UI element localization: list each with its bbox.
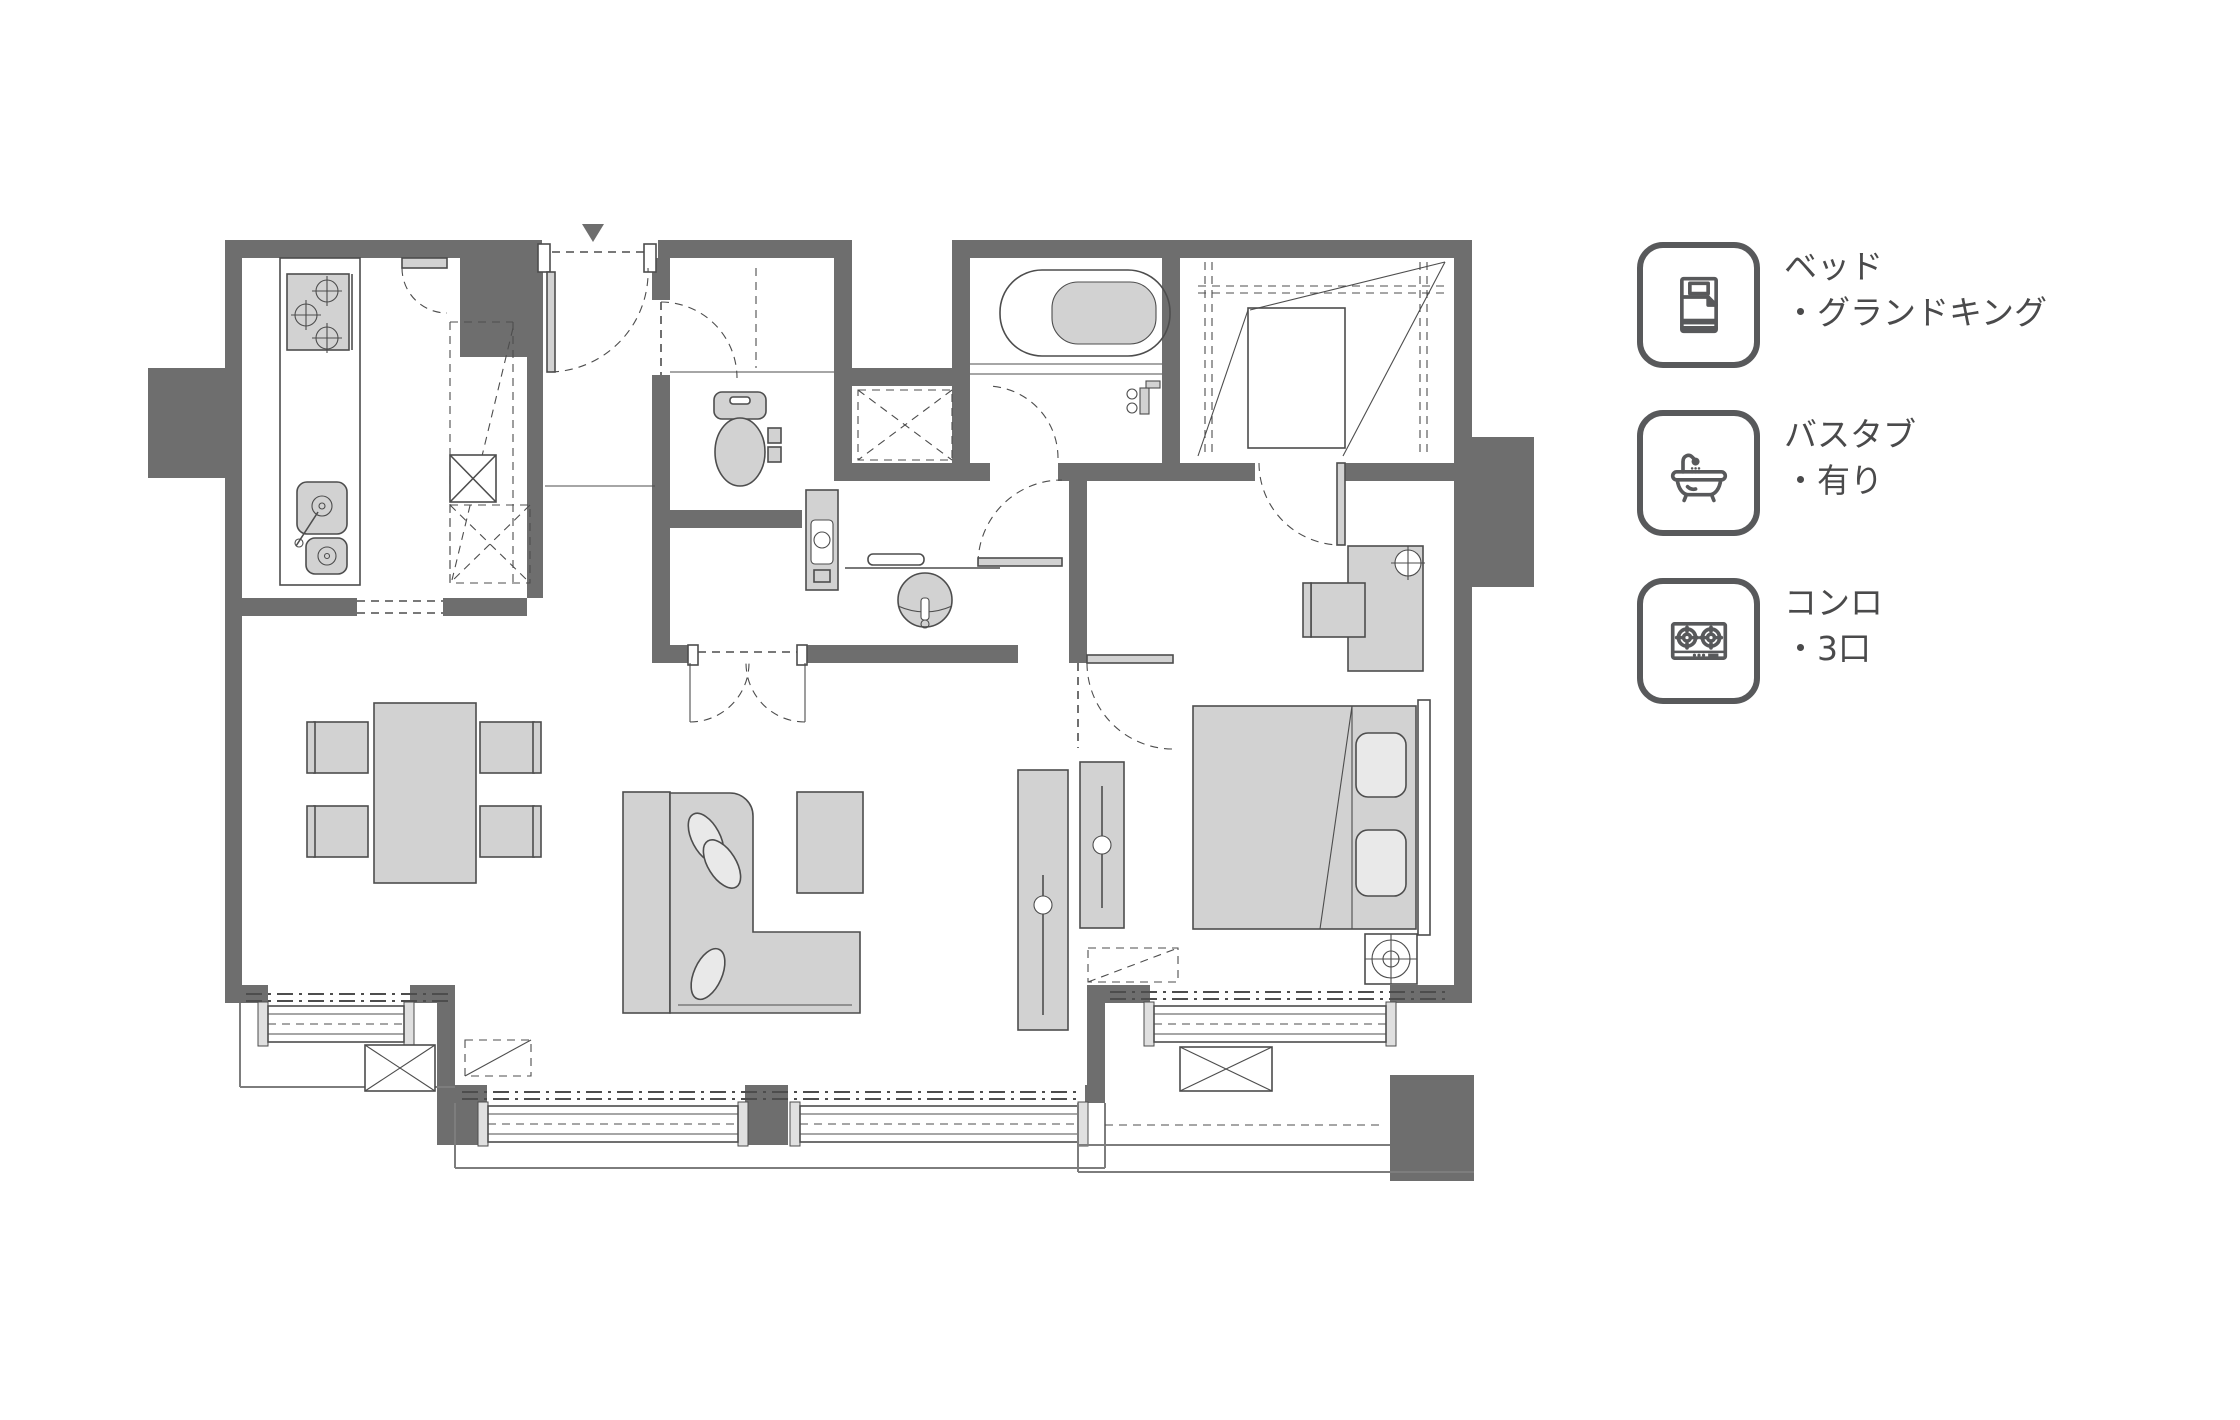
dining-chair [307, 806, 368, 857]
floor-plan [0, 0, 2240, 1420]
closet-mirror-panel [1248, 308, 1345, 448]
bedroom-door-leaf [1087, 655, 1173, 663]
hall-door-leaf [978, 558, 1062, 566]
window-dining [258, 1002, 414, 1046]
towel-bar [868, 554, 924, 565]
legend-bed-detail: ・グランドキング [1784, 290, 2047, 336]
pillow [1356, 733, 1406, 797]
coffee-table [797, 792, 863, 893]
toilet-control [768, 428, 781, 443]
toilet-room [661, 268, 834, 486]
toilet-door-swing [661, 302, 737, 378]
headboard [1418, 700, 1430, 935]
entrance [538, 224, 656, 486]
washbasin [898, 573, 952, 628]
door-frame-post [538, 244, 550, 272]
pillar-left [148, 368, 242, 478]
bathtub [1000, 270, 1170, 356]
stove-icon [1637, 578, 1760, 704]
entry-door-swing [551, 268, 648, 372]
hall-closet [858, 390, 952, 460]
legend-bathtub-detail: ・有り [1784, 458, 1916, 504]
toilet [714, 392, 766, 486]
ac-outdoor-unit [365, 1045, 435, 1091]
legend-stove-detail: ・3口 [1784, 626, 1883, 672]
dining-set [307, 703, 541, 883]
ac-outdoor-unit-2 [1180, 1047, 1272, 1091]
bed-icon [1637, 242, 1760, 368]
desk-chair [1303, 583, 1365, 637]
king-bed [1193, 700, 1430, 935]
stove-3-burner [287, 274, 352, 353]
legend-item-stove: コンロ ・3口 [1637, 578, 1883, 704]
double-door-ldk [688, 645, 807, 722]
washer-space [806, 490, 838, 590]
pillow [1356, 830, 1406, 896]
entry-door-leaf [547, 272, 555, 372]
living-dining [307, 645, 1068, 1030]
tv-board-bedroom [1080, 762, 1124, 928]
bathtub-icon [1637, 410, 1760, 536]
dining-table [374, 703, 476, 883]
window-living-2 [790, 1102, 1088, 1146]
nightstand [1365, 934, 1417, 984]
bath-door-swing [988, 386, 1058, 458]
pillar-right [1472, 437, 1534, 587]
window-living-1 [478, 1102, 748, 1146]
washroom [806, 480, 1062, 628]
shower-mixer [1127, 381, 1160, 414]
legend-bathtub-title: バスタブ [1784, 412, 1916, 458]
kitchen-door-leaf [402, 258, 447, 268]
legend-item-bathtub: バスタブ ・有り [1637, 410, 1916, 536]
door-frame-post [644, 244, 656, 272]
eave-dashed [465, 1040, 531, 1076]
closet-door-swing [1259, 463, 1341, 545]
pillar-balcony-2 [745, 1103, 788, 1145]
window-bedroom [1144, 1002, 1396, 1046]
kitchen-door-swing [402, 268, 447, 313]
refrigerator-space [450, 322, 530, 583]
legend-stove-title: コンロ [1784, 580, 1883, 626]
closet-door-leaf [1337, 463, 1345, 545]
legend-bed-title: ベッド [1784, 244, 2047, 290]
dining-chair [480, 722, 541, 773]
pillar-balcony-corner [1390, 1075, 1474, 1181]
bedroom-door-swing [1087, 663, 1173, 749]
hall-door-swing [978, 480, 1062, 564]
dining-chair [480, 806, 541, 857]
sofa-back [623, 792, 670, 1013]
floor-plan-page: { "legend": { "text_color": "#4a4a4b", "… [0, 0, 2240, 1420]
bathroom [970, 270, 1170, 458]
entrance-arrow [582, 224, 604, 242]
low-cabinet-dashed [1088, 948, 1178, 982]
dining-chair [307, 722, 368, 773]
tv-board-living [1018, 770, 1068, 1030]
legend-item-bed: ベッド ・グランドキング [1637, 242, 2047, 368]
bedroom [1078, 546, 1430, 984]
walk-in-closet [1198, 262, 1448, 545]
